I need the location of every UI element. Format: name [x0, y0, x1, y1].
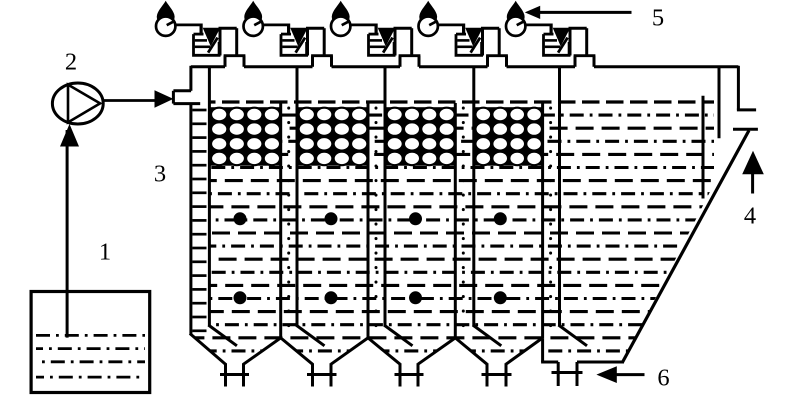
- svg-text:4: 4: [744, 203, 756, 230]
- svg-text:2: 2: [65, 49, 77, 76]
- svg-text:5: 5: [652, 4, 664, 31]
- svg-text:1: 1: [99, 239, 111, 266]
- svg-text:3: 3: [154, 161, 166, 188]
- svg-text:6: 6: [657, 365, 669, 392]
